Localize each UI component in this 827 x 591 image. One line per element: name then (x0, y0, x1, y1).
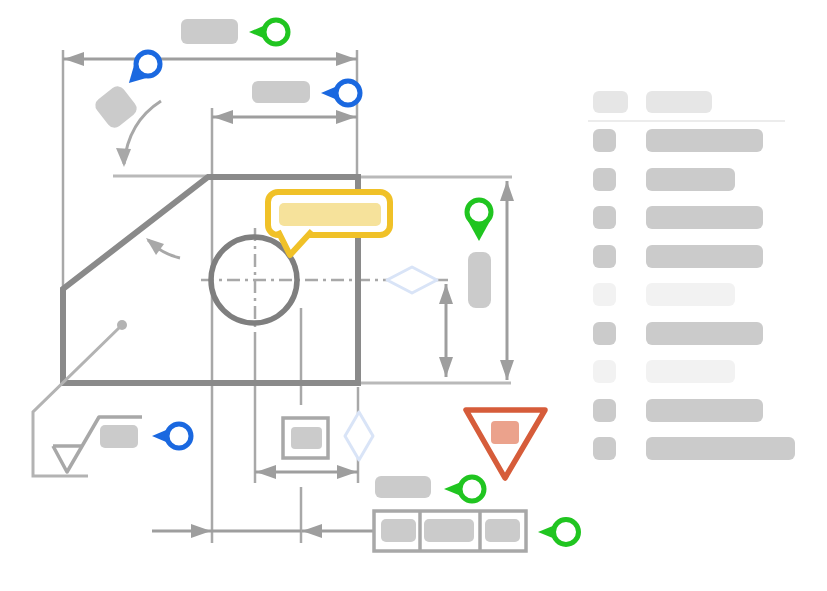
header-title-placeholder (646, 91, 712, 113)
row-text-placeholder (646, 437, 795, 460)
feature-frame-mid (283, 418, 328, 458)
annotation-review-app (0, 0, 827, 591)
annotation-row-4[interactable] (593, 245, 795, 268)
row-text-placeholder (646, 283, 735, 306)
pin-inner-width-icon[interactable] (321, 81, 360, 105)
diamond-tall (345, 412, 373, 460)
annotation-row-7[interactable] (593, 360, 795, 383)
comment-bubble[interactable] (268, 192, 390, 255)
pin-angle-icon[interactable] (120, 47, 165, 92)
annotation-row-5[interactable] (593, 283, 795, 306)
leader-dot (117, 320, 127, 330)
label-height (468, 252, 491, 308)
feature-frame-bottom (374, 511, 526, 551)
row-icon-placeholder (593, 245, 616, 268)
pin-surface-finish-icon[interactable] (152, 424, 191, 448)
row-text-placeholder (646, 129, 763, 152)
row-text-placeholder (646, 360, 735, 383)
row-icon-placeholder (593, 322, 616, 345)
dimension-lines (63, 59, 507, 531)
row-text-placeholder (646, 245, 763, 268)
header-badge-placeholder (593, 91, 628, 113)
annotation-row-9[interactable] (593, 437, 795, 460)
label-angle (92, 83, 140, 131)
annotation-row-6[interactable] (593, 322, 795, 345)
row-icon-placeholder (593, 360, 616, 383)
annotation-row-2[interactable] (593, 168, 795, 191)
label-top-width (181, 19, 238, 44)
row-text-placeholder (646, 168, 735, 191)
row-icon-placeholder (593, 168, 616, 191)
extension-lines (63, 50, 358, 543)
annotation-row-1[interactable] (593, 129, 795, 152)
diamond-wide (387, 267, 437, 293)
label-bottom (375, 476, 431, 498)
pin-right-height-icon[interactable] (467, 200, 491, 241)
angle-dimension-arc (116, 101, 180, 258)
annotation-rows (593, 129, 795, 460)
warning-triangle-icon[interactable] (466, 410, 545, 478)
row-icon-placeholder (593, 206, 616, 229)
comment-text-placeholder (279, 203, 381, 226)
row-text-placeholder (646, 206, 763, 229)
annotation-row-8[interactable] (593, 399, 795, 422)
pin-lower-label-icon[interactable] (444, 477, 484, 501)
warning-label (491, 421, 519, 444)
row-text-placeholder (646, 399, 763, 422)
row-text-placeholder (646, 322, 763, 345)
pin-top-width-icon[interactable] (249, 20, 288, 44)
surface-finish-label (100, 425, 138, 448)
row-icon-placeholder (593, 399, 616, 422)
dimension-arrowheads (64, 52, 514, 538)
label-inner-width (252, 81, 310, 103)
row-icon-placeholder (593, 437, 616, 460)
row-icon-placeholder (593, 283, 616, 306)
pin-feature-frame-icon[interactable] (538, 520, 579, 545)
row-icon-placeholder (593, 129, 616, 152)
annotation-row-3[interactable] (593, 206, 795, 229)
list-separator (588, 120, 785, 122)
